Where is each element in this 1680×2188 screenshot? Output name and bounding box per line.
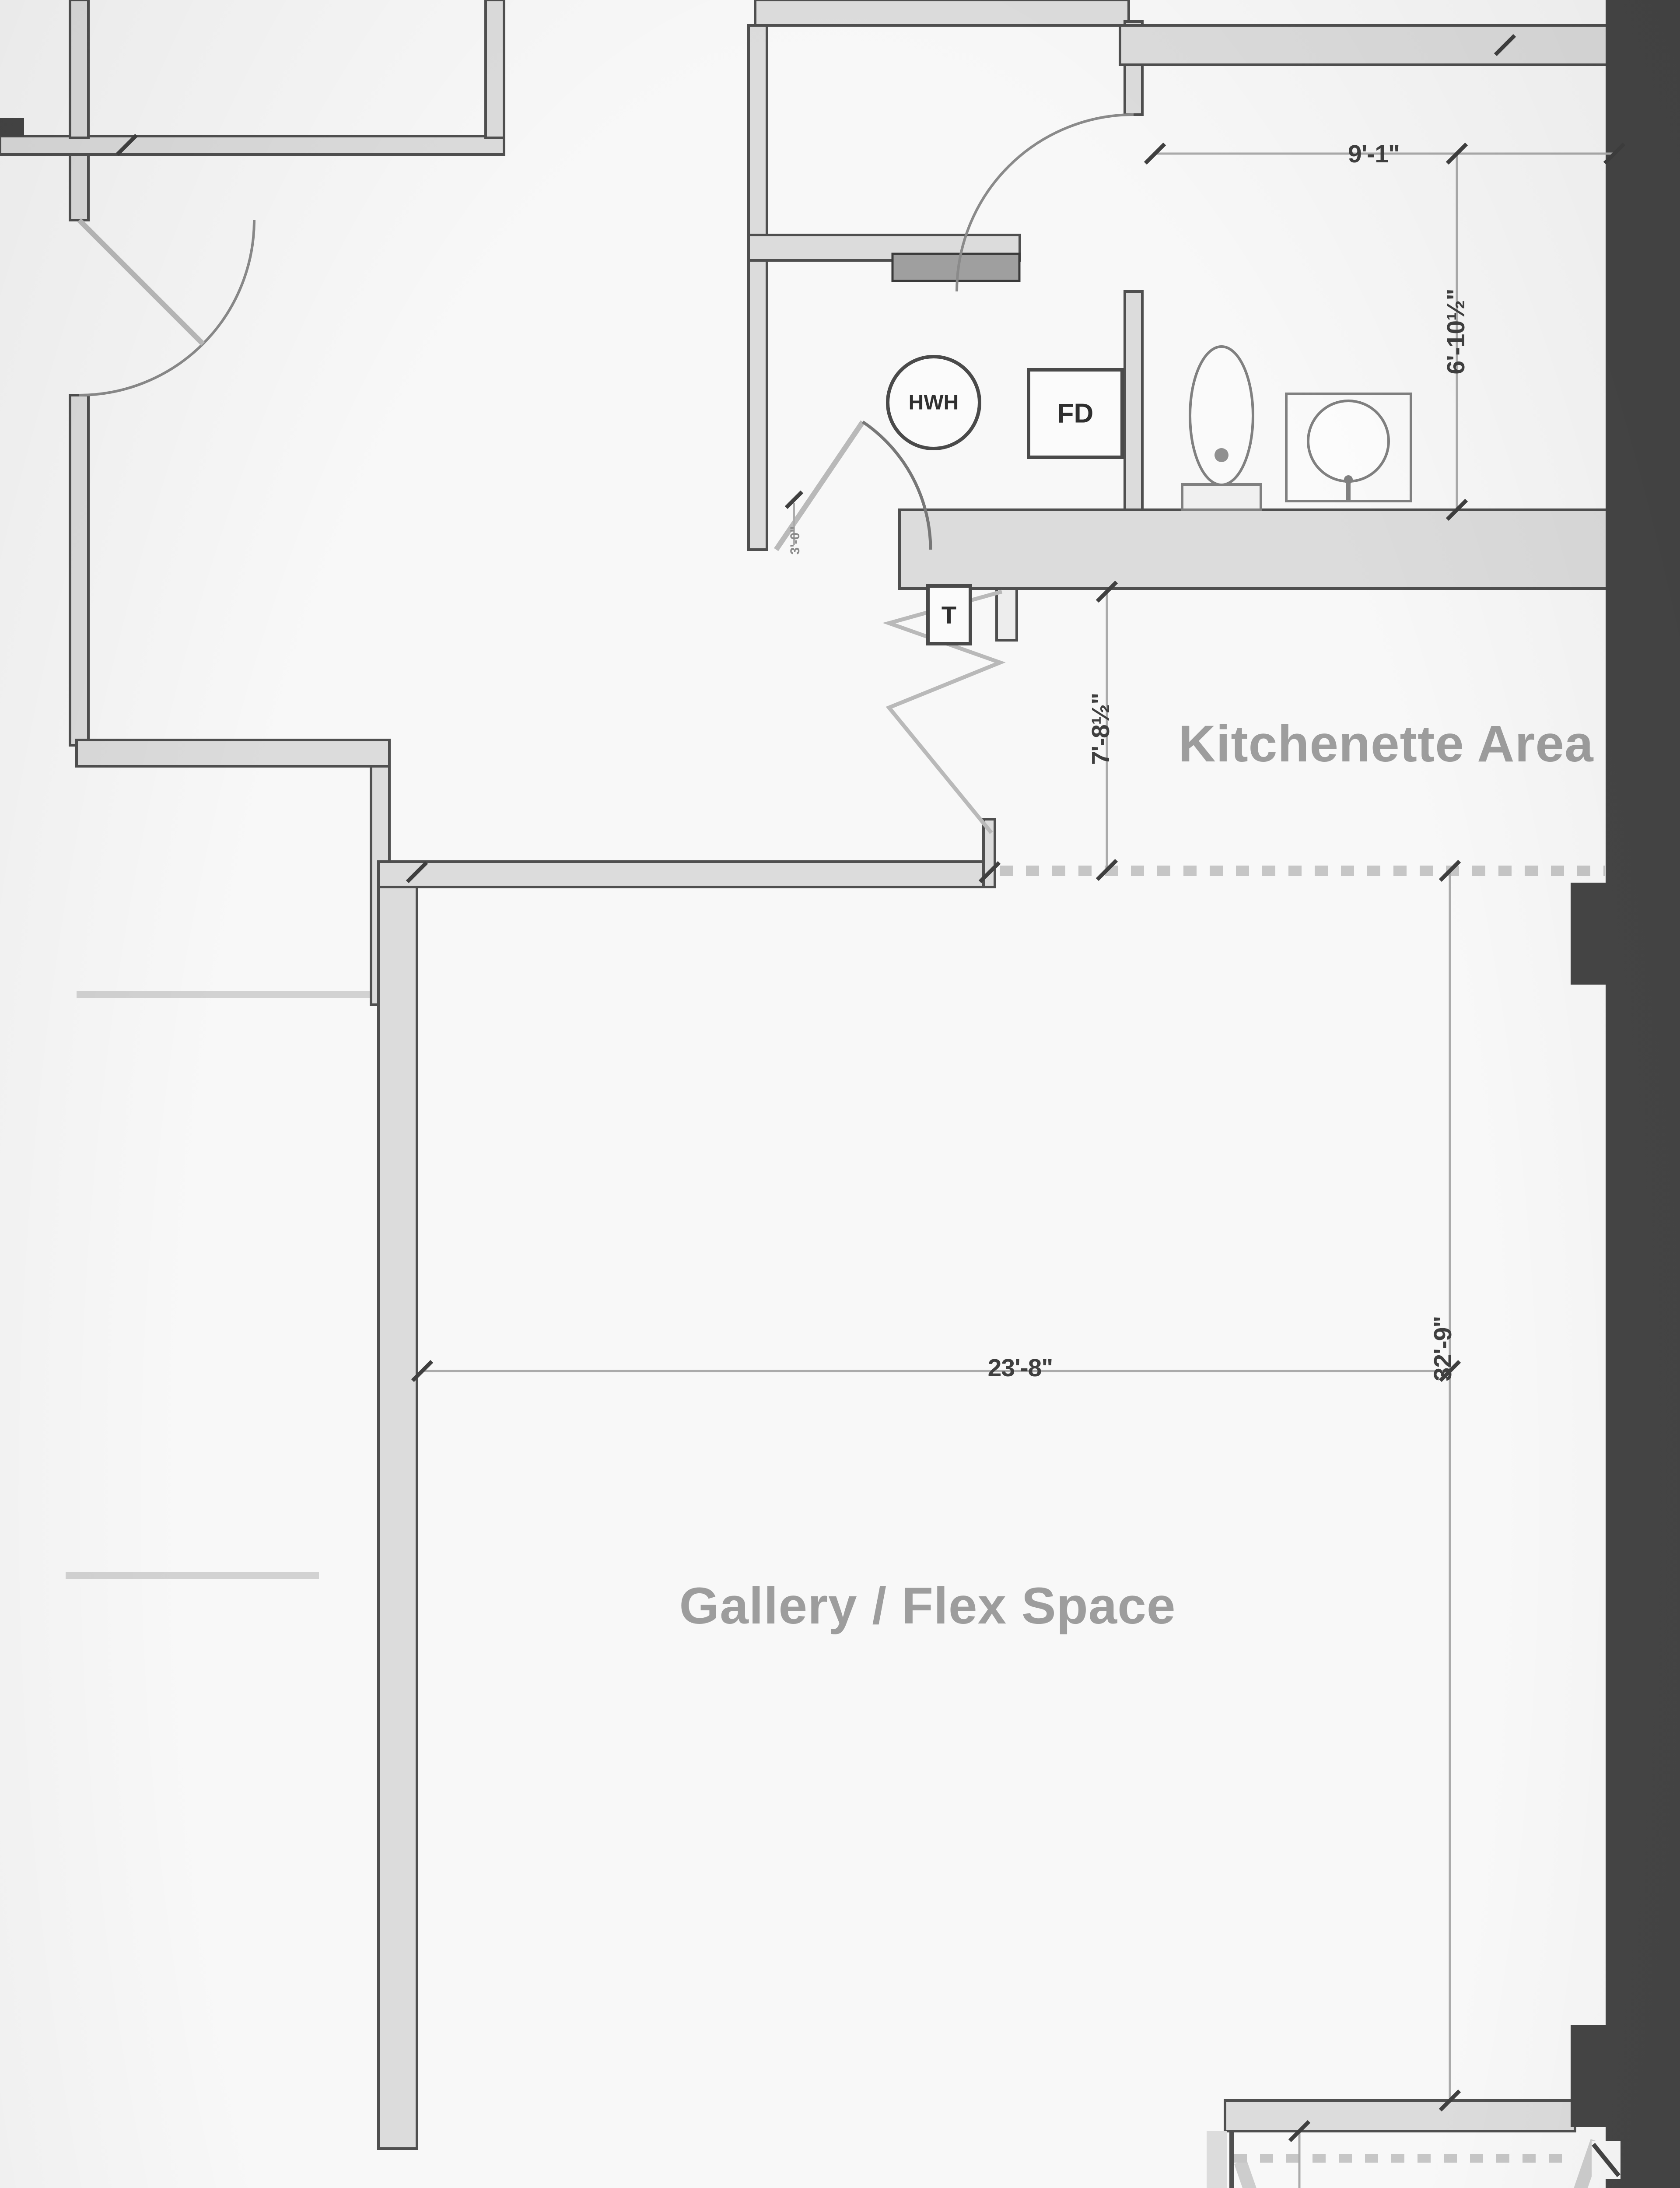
wall-segment xyxy=(77,740,389,766)
floor-plan-drawing xyxy=(0,0,1680,2188)
dimension-ticks xyxy=(117,35,1624,2188)
pilaster xyxy=(1571,2025,1606,2127)
room-label-gallery: Gallery / Flex Space xyxy=(679,1576,1176,1636)
water-heater-label: HWH xyxy=(909,391,959,415)
dim-closet-door: 3'-0" xyxy=(788,526,803,555)
wall-segment xyxy=(70,154,88,220)
dashed-lines xyxy=(1000,871,1605,2188)
door-jamb-stub xyxy=(997,589,1017,640)
dim-gallery-length: 32'-9" xyxy=(1428,1316,1457,1382)
right-wall xyxy=(1606,0,1680,2188)
shaft-x-brace xyxy=(1240,2141,1597,2188)
pilaster xyxy=(1571,883,1606,985)
wall-openings xyxy=(204,2141,1680,2188)
wall-segment xyxy=(1125,291,1142,511)
dim-bathroom-depth: 6'-10½" xyxy=(1442,289,1470,374)
left-edge-stub xyxy=(0,118,24,137)
wall-segment xyxy=(378,862,989,887)
shaft-left-wall xyxy=(1207,2131,1232,2188)
poche-walls xyxy=(0,0,1680,2188)
dim-kitchenette-opening: 7'-8½" xyxy=(1086,693,1115,765)
wall-segment xyxy=(755,0,1129,25)
wall-segment xyxy=(378,862,417,2149)
sink xyxy=(1286,394,1411,501)
closet-shelf xyxy=(892,254,1019,281)
floor-plan: Kitchenette Area Gallery / Flex Space Lo… xyxy=(0,0,1680,2188)
wall-segment xyxy=(1225,2100,1575,2131)
wall-segment xyxy=(1120,25,1614,65)
room-label-kitchenette: Kitchenette Area xyxy=(1178,714,1593,774)
walls xyxy=(0,0,1619,2188)
wall-segment xyxy=(899,510,1619,589)
wall-segment xyxy=(486,0,504,138)
wall-segment xyxy=(70,0,88,138)
wall-segment xyxy=(70,395,88,745)
toilet xyxy=(1182,347,1261,510)
door-leaf xyxy=(79,220,203,344)
dim-bathroom-width: 9'-1" xyxy=(1348,140,1400,168)
dimension-lines xyxy=(422,154,1614,2188)
thermostat-label: T xyxy=(941,601,956,629)
dim-gallery-width: 23'-8" xyxy=(988,1353,1053,1382)
wall-segment xyxy=(749,25,767,550)
floor-drain-label: FD xyxy=(1057,398,1094,429)
